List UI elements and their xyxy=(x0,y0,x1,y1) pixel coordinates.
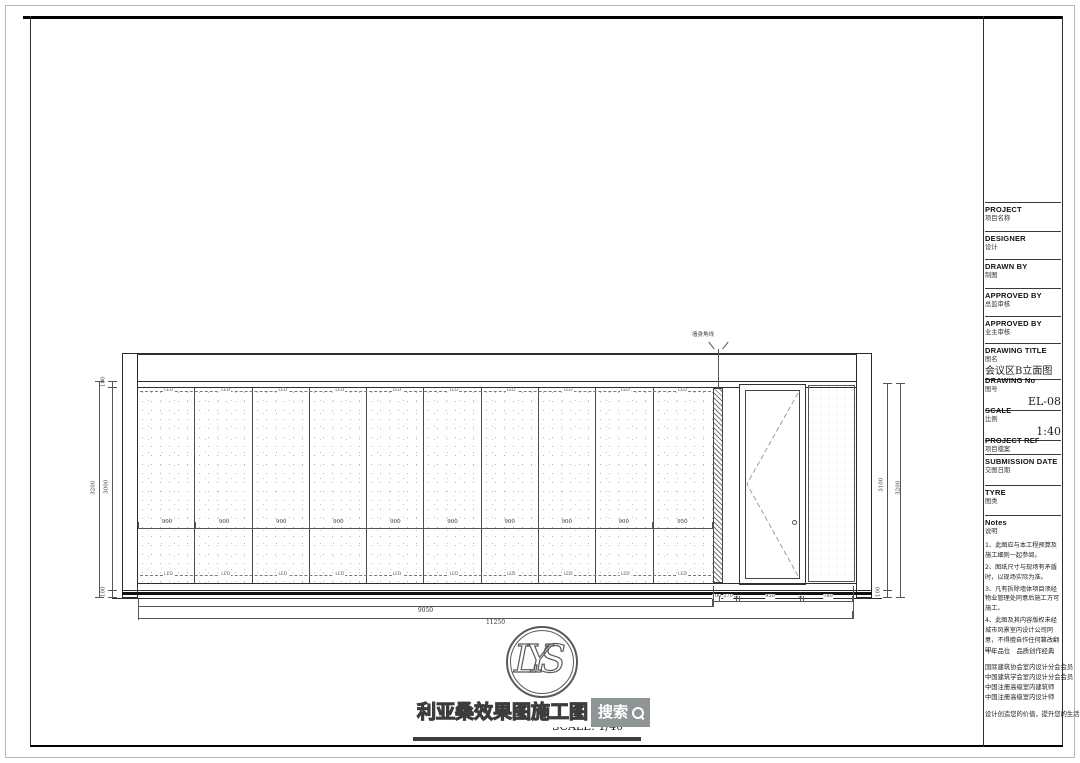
extension-line xyxy=(713,586,714,607)
extension-line xyxy=(853,586,854,619)
led-label: LED xyxy=(334,389,345,394)
dim-tick xyxy=(108,387,117,388)
panels-total-dimension: 9050 xyxy=(138,599,713,607)
extension-line xyxy=(138,598,139,620)
slogan-1: 十年品位 品质创作经典 xyxy=(985,648,1054,657)
wall-panel xyxy=(195,388,252,583)
field-label-en: DRAWING TITLE xyxy=(985,346,1061,355)
led-label: LED xyxy=(620,389,631,394)
field-label-zh: 总监审核 xyxy=(985,300,1061,309)
certification: 国际建筑协会室内设计分会会员 xyxy=(985,664,1073,673)
titleblock-divider xyxy=(983,16,984,747)
door xyxy=(739,384,806,585)
led-label: LED xyxy=(163,573,174,578)
dim-segment: 900 xyxy=(538,522,595,528)
door-knob xyxy=(792,520,797,525)
right-dim-line-inner xyxy=(887,383,888,597)
field-label-en: TYRE xyxy=(985,488,1061,497)
wall-top-line xyxy=(122,353,872,355)
field-label-en: DESIGNER xyxy=(985,234,1061,243)
leader-label: 墙身角线 xyxy=(692,333,714,339)
wall-panel xyxy=(654,388,713,583)
dim-tick xyxy=(108,381,117,382)
field-label-zh: 图号 xyxy=(985,385,1061,394)
dim-segment: 270 xyxy=(719,596,736,601)
frame-left-line xyxy=(30,16,31,747)
led-strip-bottom: LED LED LED LED LED LED LED LED LED LED xyxy=(140,575,711,578)
wall-panel xyxy=(482,388,539,583)
wall-section-right-of-door xyxy=(808,385,855,582)
certification: 中国注册高级室内设计师 xyxy=(985,694,1054,703)
field-label-en: APPROVED BY xyxy=(985,291,1061,300)
field-label-zh: 业主审核 xyxy=(985,328,1061,337)
door-swing-lines xyxy=(746,391,799,578)
dim-label: 3200 xyxy=(896,481,902,495)
led-label: LED xyxy=(620,573,631,578)
left-dim-line-inner xyxy=(112,381,113,597)
panel-bottom-line xyxy=(138,583,856,584)
dim-label: 3000 xyxy=(104,480,110,494)
dim-label: 100 xyxy=(102,587,108,598)
search-icon xyxy=(632,707,644,719)
watermark-banner: 利亚桑效果图施工图 搜索 xyxy=(414,698,650,727)
search-button[interactable]: 搜索 xyxy=(591,698,650,727)
certification: 中国建筑学会室内设计分会会员 xyxy=(985,674,1073,683)
led-label: LED xyxy=(277,573,288,578)
led-label: LED xyxy=(277,389,288,394)
field-label-zh: 设计 xyxy=(985,243,1061,252)
field-label-en: PROJECT xyxy=(985,205,1061,214)
wall-panel xyxy=(138,388,195,583)
field-label-en: DRAWN BY xyxy=(985,262,1061,271)
led-label: LED xyxy=(677,573,688,578)
frame-right-line xyxy=(1062,16,1063,747)
dim-tick xyxy=(883,590,892,591)
field-label-en: DRAWING No xyxy=(985,376,1061,385)
wall-panel xyxy=(596,388,653,583)
panel-dimension-row: 900 900 900 900 900 900 900 900 900 950 xyxy=(138,522,713,529)
right-wall-column xyxy=(856,353,872,598)
search-button-label: 搜索 xyxy=(598,698,628,727)
note-item: 1、此图应与本工程预算及施工细则一起参阅。 xyxy=(985,541,1061,561)
led-strip-top: LED LED LED LED LED LED LED LED LED LED xyxy=(140,391,711,394)
dim-segment: 900 xyxy=(366,522,423,528)
led-label: LED xyxy=(163,389,174,394)
field-label-zh: 图名 xyxy=(985,355,1061,364)
field-label-en: APPROVED BY xyxy=(985,319,1061,328)
wall-panel xyxy=(253,388,310,583)
dim-segment: 950 xyxy=(739,596,800,601)
dim-segment: 900 xyxy=(423,522,480,528)
titleblock-tyre: TYRE 图类 xyxy=(985,485,1061,507)
field-label-en: SCALE xyxy=(985,406,1061,415)
field-label-zh: 项目名称 xyxy=(985,214,1061,223)
field-label-zh: 说明 xyxy=(985,527,1061,536)
led-label: LED xyxy=(334,573,345,578)
titleblock-approved-by-1: APPROVED BY 总监审核 xyxy=(985,288,1061,310)
wall-panel-group xyxy=(138,388,713,583)
led-label: LED xyxy=(449,389,460,394)
led-label: LED xyxy=(392,573,403,578)
field-label-en: Notes xyxy=(985,518,1061,527)
led-label: LED xyxy=(506,573,517,578)
led-label: LED xyxy=(220,573,231,578)
left-dim-line-outer xyxy=(99,381,100,597)
dim-tick xyxy=(108,590,117,591)
led-label: LED xyxy=(392,389,403,394)
dim-tick xyxy=(896,383,905,384)
wall-panel xyxy=(367,388,424,583)
led-label: LED xyxy=(220,389,231,394)
field-label-zh: 制图 xyxy=(985,271,1061,280)
certification: 中国注册高级室内建筑师 xyxy=(985,684,1054,693)
wall-panel xyxy=(539,388,596,583)
dim-segment: 900 xyxy=(595,522,652,528)
frame-bottom-line xyxy=(30,745,1063,747)
titleblock-notes: Notes 说明 1、此图应与本工程预算及施工细则一起参阅。 2、图纸尺寸与现场… xyxy=(985,515,1061,658)
dim-label: 3200 xyxy=(91,481,97,495)
titleblock-project: PROJECT 项目名称 xyxy=(985,202,1061,224)
field-label-zh: 交图日期 xyxy=(985,466,1061,475)
wall-panel xyxy=(310,388,367,583)
titleblock-approved-by-2: APPROVED BY 业主审核 xyxy=(985,316,1061,338)
wall-panel xyxy=(424,388,481,583)
dim-segment: 900 xyxy=(481,522,538,528)
dim-segment: 780 xyxy=(803,596,853,601)
dim-tick xyxy=(95,597,104,598)
dim-label: 3100 xyxy=(879,478,885,492)
dim-tick xyxy=(108,597,117,598)
dim-label: 100 xyxy=(877,587,883,598)
dim-segment: 900 xyxy=(195,522,252,528)
lys-logo: LYS xyxy=(506,626,578,698)
field-label-zh: 图类 xyxy=(985,497,1061,506)
note-item: 2、图纸尺寸与现场有矛盾时，以现场实际为准。 xyxy=(985,563,1061,583)
frame-top-line xyxy=(23,16,1063,19)
dim-segment: 900 xyxy=(309,522,366,528)
left-wall-column xyxy=(122,353,138,598)
baseboard-line xyxy=(122,590,872,591)
dim-segment: 900 xyxy=(138,522,195,528)
titleblock-project-ref: PROJECT REF 项目檔案 xyxy=(985,434,1061,455)
ceiling-band-line-1 xyxy=(138,381,856,382)
led-label: LED xyxy=(506,389,517,394)
dim-segment: 950 xyxy=(652,522,713,528)
led-label: LED xyxy=(563,573,574,578)
dim-tick xyxy=(883,597,892,598)
field-label-zh: 比例 xyxy=(985,415,1061,424)
logo-letters: LYS xyxy=(514,640,555,678)
floor-line-thick xyxy=(122,592,872,595)
titleblock-drawn-by: DRAWN BY 制图 xyxy=(985,259,1061,281)
led-label: LED xyxy=(449,573,460,578)
title-underline xyxy=(413,737,641,741)
dim-tick xyxy=(896,597,905,598)
dim-segment: 900 xyxy=(252,522,309,528)
led-label: LED xyxy=(677,389,688,394)
door-area-dimension-row: 100 270 50 950 50 780 xyxy=(713,596,853,602)
note-item: 3、凡有拆除墙体项目须经物业管理处同意后施工方可施工。 xyxy=(985,585,1061,615)
led-label: LED xyxy=(563,389,574,394)
dim-tick xyxy=(883,383,892,384)
door-leaf xyxy=(745,390,800,579)
dim-tick xyxy=(95,381,104,382)
drawing-sheet: LED LED LED LED LED LED LED LED LED LED … xyxy=(0,0,1080,763)
titleblock-designer: DESIGNER 设计 xyxy=(985,231,1061,253)
watermark-brand-text: 利亚桑效果图施工图 xyxy=(414,698,591,727)
hatched-wall-post xyxy=(713,388,723,583)
field-label-en: SUBMISSION DATE xyxy=(985,457,1061,466)
field-label-en: PROJECT REF xyxy=(985,436,1061,445)
titleblock-submission-date: SUBMISSION DATE 交图日期 xyxy=(985,454,1061,476)
leader-line-vertical xyxy=(718,349,719,388)
overall-dimension: 11250 xyxy=(138,611,853,619)
slogan-2: 设计创造您的价值，提升您的生活品质 xyxy=(985,711,1080,720)
